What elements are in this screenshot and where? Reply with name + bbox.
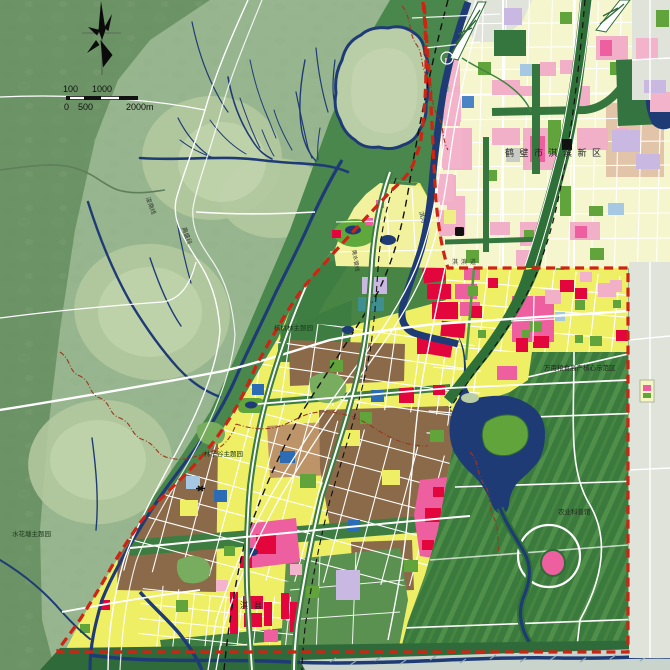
svg-text:2000m: 2000m — [126, 102, 154, 112]
svg-text:鹤壁市淇滨新区: 鹤壁市淇滨新区 — [505, 147, 607, 158]
svg-text:1000: 1000 — [92, 84, 112, 94]
svg-text:淇县: 淇县 — [240, 601, 268, 610]
svg-text:淇滨道: 淇滨道 — [452, 258, 479, 266]
svg-text:水花塘主题园: 水花塘主题园 — [12, 529, 51, 538]
svg-text:林子谷主题园: 林子谷主题园 — [204, 449, 243, 458]
svg-text:核桃林主题园: 核桃林主题园 — [274, 323, 313, 332]
svg-text:农业科普馆: 农业科普馆 — [558, 507, 591, 516]
svg-text:万亩粮食高产核心示范区: 万亩粮食高产核心示范区 — [544, 363, 616, 372]
svg-text:0: 0 — [64, 102, 69, 112]
svg-text:100: 100 — [63, 84, 78, 94]
svg-text:500: 500 — [78, 102, 93, 112]
